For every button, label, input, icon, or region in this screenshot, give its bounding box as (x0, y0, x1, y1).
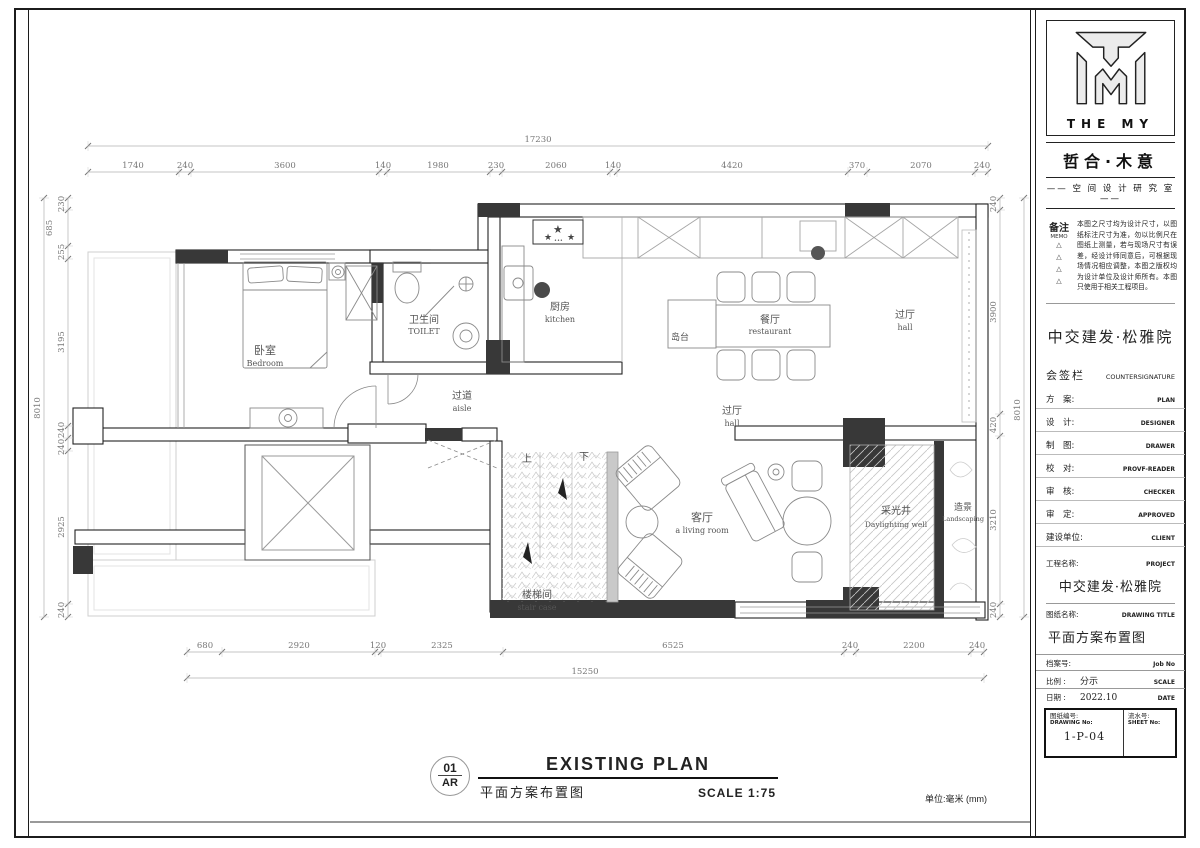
sign-row-plan: 方 案: PLAN (1036, 386, 1185, 409)
project-label-row: 工程名称: PROJECT (1036, 553, 1185, 570)
memo-label-zh: 备注 (1046, 219, 1072, 234)
sign-row-proofreader: 校 对: PROVF-READER (1036, 455, 1185, 478)
memo-text: 本图之尺寸均为设计尺寸，以图纸标注尺寸为准，勿以比例尺在图纸上测量，若与现场尺寸… (1077, 219, 1177, 293)
landscaping-plants (950, 462, 976, 590)
label-stair-down: 下 (579, 452, 589, 463)
coffee-table (626, 506, 658, 538)
svg-text:240: 240 (177, 161, 193, 171)
title-block: THE MY 哲合·木意 —— 空 间 设 计 研 究 室 —— 备注 MEMO… (1035, 10, 1185, 836)
svg-text:17230: 17230 (524, 135, 551, 145)
svg-text:2325: 2325 (431, 641, 453, 651)
svg-text:2920: 2920 (288, 641, 310, 651)
elevator-shaft (245, 445, 370, 560)
label-aisle-en: aisle (453, 404, 472, 413)
svg-text:1980: 1980 (427, 161, 449, 171)
sign-row-drawer: 制 图: DRAWER (1036, 432, 1185, 455)
project-name: 中交建发·松雅院 (1036, 570, 1185, 603)
memo-section: 备注 MEMO △△△△ 本图之尺寸均为设计尺寸，以图纸标注尺寸为准，勿以比例尺… (1036, 211, 1185, 297)
logo-monogram-icon (1065, 27, 1157, 111)
floor-plan: ★ ★ ★ ••• 卧室 Bedroom 卫生间 TOILET 厨房 kitch… (0, 0, 1030, 848)
stool-2 (792, 552, 822, 582)
svg-text:240: 240 (842, 641, 858, 651)
svg-text:240: 240 (989, 196, 999, 212)
drawing-number-box: 图纸编号: DRAWING No: 1-P-04 流水号: SHEET No: (1044, 708, 1177, 758)
svg-text:140: 140 (605, 161, 621, 171)
label-island-zh: 岛台 (671, 331, 689, 343)
unit-note: 单位:毫米 (mm) (925, 792, 987, 805)
svg-text:420: 420 (989, 417, 999, 433)
svg-text:120: 120 (370, 641, 386, 651)
label-toilet-zh: 卫生间 (409, 313, 439, 326)
dining-set (668, 272, 830, 380)
sofa (720, 462, 786, 542)
studio-name: —— 空 间 设 计 研 究 室 —— (1036, 180, 1185, 206)
drawing-title-value: 平面方案布置图 (1036, 621, 1185, 654)
svg-text:240: 240 (969, 641, 985, 651)
label-kitchen-en: kitchen (545, 315, 575, 324)
countersignature-header: 会签栏 COUNTERSIGNATURE (1036, 361, 1185, 386)
drawing-caption: 01 AR EXISTING PLAN 平面方案布置图 SCALE 1:75 (430, 754, 778, 801)
label-stair-en: stair case (517, 603, 556, 612)
svg-text:255: 255 (57, 244, 67, 260)
caption-scale: SCALE 1:75 (698, 786, 776, 800)
armchair-2 (616, 531, 685, 600)
label-bedroom-en: Bedroom (247, 359, 284, 368)
svg-text:3900: 3900 (989, 301, 999, 323)
stool-1 (792, 461, 822, 491)
label-landscape-en: Landscaping (942, 515, 984, 523)
label-dining-zh: 餐厅 (760, 313, 780, 326)
svg-text:240: 240 (57, 439, 67, 455)
countersignature-zh: 会签栏 (1046, 367, 1085, 383)
detail-bubble: 01 AR (430, 756, 470, 796)
armchair-1 (614, 443, 683, 512)
label-stair-zh: 楼梯间 (522, 588, 552, 601)
label-landscape-zh: 造景 (954, 501, 972, 513)
label-stair-up: 上 (522, 453, 532, 465)
console-table (250, 408, 323, 428)
svg-text:230: 230 (57, 196, 67, 212)
drawing-no-label-zh: 图纸编号: (1050, 712, 1119, 720)
drawing-sheet: ★ ★ ★ ••• 卧室 Bedroom 卫生间 TOILET 厨房 kitch… (0, 0, 1200, 848)
svg-text:8010: 8010 (1013, 399, 1023, 421)
discipline-code: AR (438, 775, 462, 790)
svg-text:4420: 4420 (721, 161, 743, 171)
svg-text:8010: 8010 (33, 397, 43, 419)
svg-text:685: 685 (45, 220, 55, 236)
label-hall-lower-zh: 过厅 (722, 404, 742, 417)
company-name-zh: 哲合·木意 (1036, 145, 1185, 175)
svg-text:★: ★ (567, 233, 575, 243)
svg-text:240: 240 (989, 602, 999, 618)
label-toilet-en: TOILET (408, 327, 440, 336)
svg-text:★: ★ (544, 233, 552, 243)
label-daylight-zh: 采光井 (881, 504, 911, 517)
svg-text:6525: 6525 (662, 641, 684, 651)
svg-text:230: 230 (488, 161, 504, 171)
cabinet-run (583, 217, 958, 260)
svg-text:1740: 1740 (122, 161, 144, 171)
meta-row-scale: 比例 : 分示 SCALE (1036, 670, 1185, 688)
svg-text:•••: ••• (554, 238, 563, 244)
revision-triangles: △△△△ (1046, 240, 1072, 288)
label-bedroom-zh: 卧室 (254, 343, 276, 357)
plant-decor (768, 464, 784, 480)
label-hall-lower-en: hall (724, 419, 739, 428)
drawing-no-label-en: DRAWING No: (1050, 720, 1119, 727)
label-kitchen-zh: 厨房 (550, 300, 570, 313)
staircase (502, 452, 618, 602)
label-living-en: a living room (675, 526, 729, 535)
svg-text:680: 680 (197, 641, 213, 651)
countersignature-en: COUNTERSIGNATURE (1106, 373, 1175, 381)
sign-row-approved: 审 定: APPROVED (1036, 501, 1185, 524)
svg-text:240: 240 (57, 422, 67, 438)
doors (334, 374, 497, 468)
svg-text:240: 240 (974, 161, 990, 171)
label-living-zh: 客厅 (691, 510, 713, 524)
sheet-no-label-en: SHEET No: (1128, 720, 1171, 727)
caption-title-zh: 平面方案布置图 (480, 782, 585, 801)
drawing-number: 1-P-04 (1050, 730, 1119, 743)
star-decor: ★ ★ ★ ••• (533, 220, 583, 244)
svg-text:2070: 2070 (910, 161, 932, 171)
meta-row-date: 日期 : 2022.10 DATE (1036, 688, 1185, 704)
sheet-no-label-zh: 流水号: (1128, 712, 1171, 720)
svg-text:3600: 3600 (274, 161, 296, 171)
caption-title-en: EXISTING PLAN (478, 754, 778, 779)
label-daylight-en: Daylighting well (865, 520, 928, 529)
svg-text:370: 370 (849, 161, 865, 171)
titleblock-separator-line (1030, 8, 1031, 838)
drawing-title-label-row: 图纸名称: DRAWING TITLE (1036, 604, 1185, 621)
label-dining-en: restaurant (749, 327, 793, 336)
sign-row-client: 建设单位: CLIENT (1036, 524, 1185, 547)
svg-text:240: 240 (57, 602, 67, 618)
company-logo: THE MY (1046, 20, 1175, 136)
round-table (783, 497, 831, 545)
detail-number: 01 (443, 762, 456, 775)
svg-text:3195: 3195 (57, 331, 67, 353)
client-banner: 中交建发·松雅院 (1036, 310, 1185, 361)
label-aisle-zh: 过道 (452, 389, 472, 402)
svg-text:2200: 2200 (903, 641, 925, 651)
brand-name: THE MY (1051, 117, 1170, 131)
sign-row-designer: 设 计: DESIGNER (1036, 409, 1185, 432)
svg-text:15250: 15250 (571, 667, 598, 677)
svg-text:140: 140 (375, 161, 391, 171)
label-hall-upper-en: hall (897, 323, 912, 332)
svg-text:3210: 3210 (989, 509, 999, 531)
svg-text:2060: 2060 (545, 161, 567, 171)
svg-text:2925: 2925 (57, 516, 67, 538)
meta-row-jobno: 档案号: Job No (1036, 654, 1185, 670)
label-hall-upper-zh: 过厅 (895, 308, 915, 321)
nightstand-plant (329, 263, 345, 280)
svg-text:★: ★ (553, 223, 563, 236)
sign-row-checker: 审 核: CHECKER (1036, 478, 1185, 501)
